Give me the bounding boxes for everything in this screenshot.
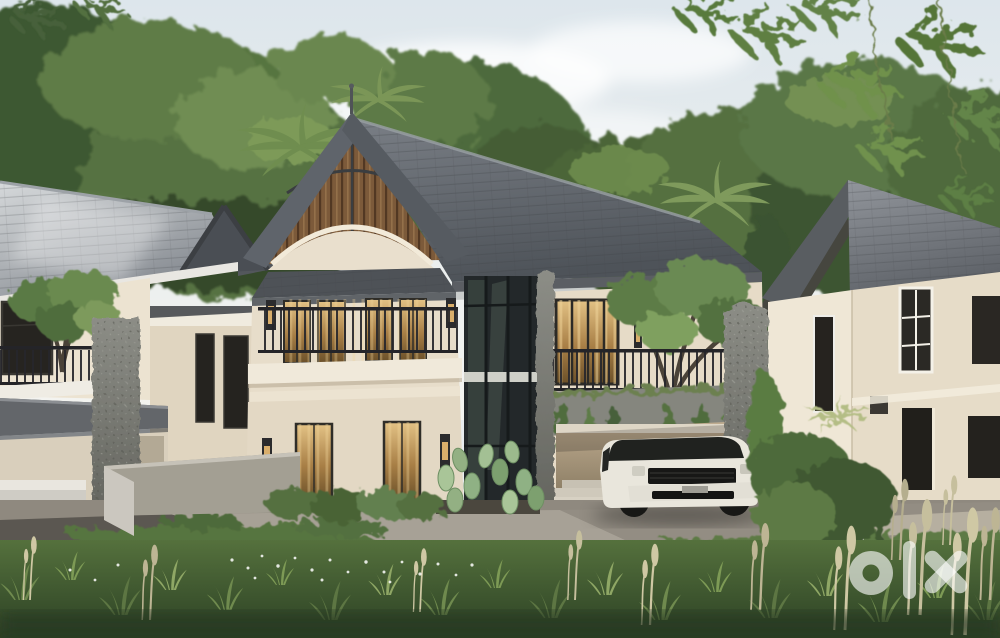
gable-balcony-railing (258, 307, 458, 353)
left-villa-balcony-railing (0, 346, 92, 385)
right-villa-window-narrow (814, 316, 834, 412)
olx-letter-l (903, 541, 916, 599)
villa-render-scene (0, 0, 1000, 638)
car-headlight-left (632, 466, 645, 476)
listing-photo (0, 0, 1000, 638)
left-villa-bench (0, 480, 86, 490)
car-grille (648, 468, 736, 484)
suv-car (592, 436, 768, 526)
car-plate (682, 486, 708, 493)
right-villa-window-recessed (902, 408, 934, 490)
car-windshield (607, 437, 744, 461)
right-villa-window-framed (900, 288, 932, 372)
hedge (267, 488, 446, 523)
